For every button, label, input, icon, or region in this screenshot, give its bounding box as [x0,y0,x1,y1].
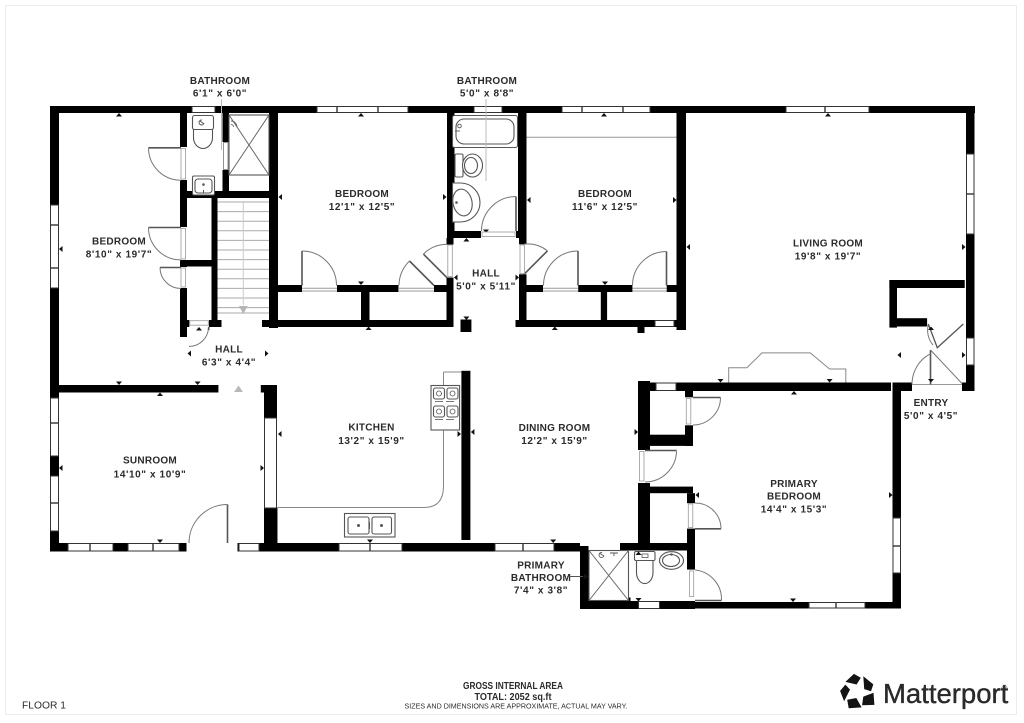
svg-text:13'2" x 15'9": 13'2" x 15'9" [338,436,405,447]
svg-text:LIVING ROOM: LIVING ROOM [793,239,863,250]
svg-text:BEDROOM: BEDROOM [767,492,821,503]
svg-text:5'0" x 4'5": 5'0" x 4'5" [904,411,958,422]
svg-text:Matterport: Matterport [883,678,1009,709]
svg-text:BEDROOM: BEDROOM [578,189,632,200]
svg-text:5'0" x 5'11": 5'0" x 5'11" [456,282,516,293]
svg-text:HALL: HALL [472,269,500,280]
svg-text:12'1" x 12'5": 12'1" x 12'5" [329,202,396,213]
svg-text:14'4" x 15'3": 14'4" x 15'3" [761,505,828,516]
svg-text:11'6" x 12'5": 11'6" x 12'5" [572,202,638,213]
svg-text:FLOOR 1: FLOOR 1 [22,700,66,712]
svg-text:BATHROOM: BATHROOM [457,76,517,87]
svg-text:HALL: HALL [215,345,243,356]
svg-text:BATHROOM: BATHROOM [511,573,571,584]
svg-text:®: ® [1002,684,1008,693]
svg-text:PRIMARY: PRIMARY [517,561,565,572]
svg-text:KITCHEN: KITCHEN [348,423,394,434]
svg-text:6'1" x 6'0": 6'1" x 6'0" [193,89,247,100]
svg-text:19'8" x 19'7": 19'8" x 19'7" [795,252,862,263]
svg-text:14'10" x 10'9": 14'10" x 10'9" [114,470,187,481]
svg-text:GROSS INTERNAL AREA: GROSS INTERNAL AREA [463,681,563,692]
svg-text:BEDROOM: BEDROOM [92,237,146,248]
svg-text:PRIMARY: PRIMARY [770,479,818,490]
svg-text:5'0" x 8'8": 5'0" x 8'8" [460,89,514,100]
svg-text:DINING ROOM: DINING ROOM [519,423,591,434]
svg-text:SUNROOM: SUNROOM [123,456,177,467]
svg-text:6'3" x 4'4": 6'3" x 4'4" [202,358,256,369]
svg-text:SIZES AND DIMENSIONS ARE APPRO: SIZES AND DIMENSIONS ARE APPROXIMATE, AC… [405,702,628,711]
svg-text:BEDROOM: BEDROOM [335,189,389,200]
svg-text:ENTRY: ENTRY [914,398,949,409]
svg-text:8'10" x 19'7": 8'10" x 19'7" [86,250,153,261]
svg-text:12'2" x 15'9": 12'2" x 15'9" [521,436,588,447]
svg-text:7'4" x 3'8": 7'4" x 3'8" [514,586,568,597]
svg-text:BATHROOM: BATHROOM [190,76,250,87]
